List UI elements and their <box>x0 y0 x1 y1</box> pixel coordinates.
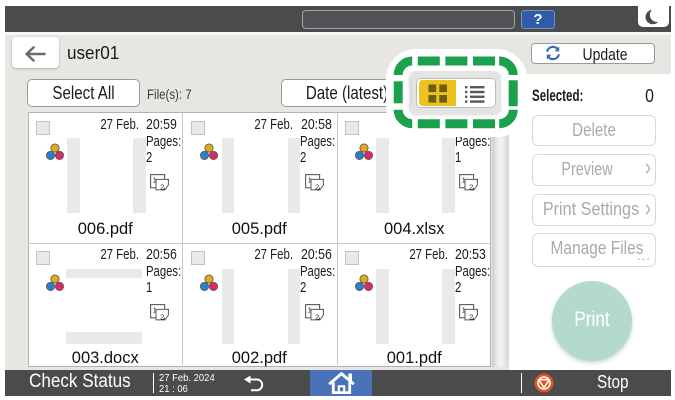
svg-text:2: 2 <box>315 182 319 191</box>
svg-text:2: 2 <box>160 182 164 191</box>
svg-text:2: 2 <box>469 312 473 321</box>
svg-text:2: 2 <box>315 312 319 321</box>
svg-text:2: 2 <box>469 182 473 191</box>
svg-text:2: 2 <box>160 312 164 321</box>
